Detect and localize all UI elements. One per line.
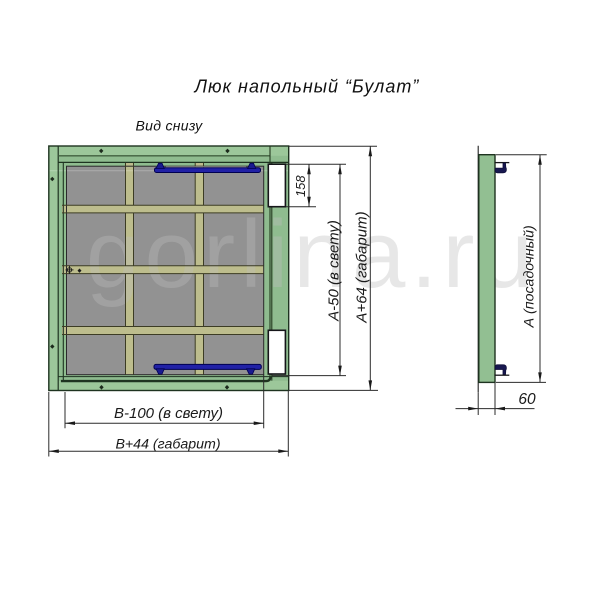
svg-text:В+44 (габарит): В+44 (габарит) (115, 437, 220, 453)
svg-text:Вид снизу: Вид снизу (136, 118, 204, 134)
svg-text:158: 158 (293, 175, 308, 197)
svg-text:В-100 (в свету): В-100 (в свету) (114, 405, 223, 422)
svg-text:А (посадочный): А (посадочный) (522, 225, 538, 328)
svg-text:А-50 (в свету): А-50 (в свету) (326, 220, 343, 322)
svg-text:gorlina.ru: gorlina.ru (86, 201, 538, 308)
svg-text:А+64 (габарит): А+64 (габарит) (353, 211, 370, 323)
svg-text:Люк напольный “Булат”: Люк напольный “Булат” (194, 77, 420, 97)
svg-text:60: 60 (518, 391, 536, 408)
